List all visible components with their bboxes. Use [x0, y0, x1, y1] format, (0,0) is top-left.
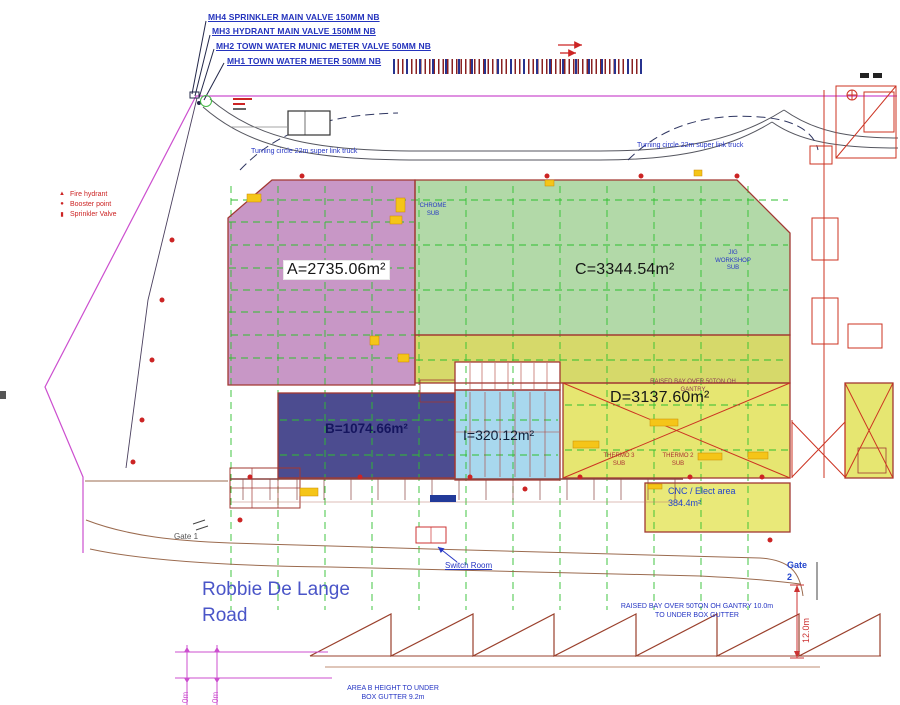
water-meter-box [190, 92, 199, 98]
road-name-label: Robbie De Lange Road [202, 577, 350, 628]
black-tick-1 [860, 73, 869, 78]
left-dimension-1: 0m [181, 692, 190, 703]
cnc-elect-area-label: CNC / Elect area 384.4m² [668, 486, 736, 509]
mh3-valve-label: MH3 HYDRANT MAIN VALVE 150MM NB [212, 26, 376, 36]
gate1-label: Gate 1 [174, 532, 198, 541]
mh1-valve-label: MH1 TOWN WATER METER 50MM NB [227, 56, 381, 66]
parking-sign-chip [430, 495, 456, 502]
switch-room-label: Switch Room [445, 561, 492, 570]
rooms-block [455, 362, 560, 390]
raised-bay-gantry-label: RAISED BAY OVER 50TON OH GANTRY [633, 379, 753, 394]
thermo3-sub-label: THERMO 3 SUB [593, 453, 645, 468]
pipe-hatch-strip [393, 59, 645, 74]
raised-bay-bottom-note: RAISED BAY OVER 50TON OH GANTRY 10.0m TO… [612, 603, 782, 621]
legend-item-sprinkler-valve: ▮ Sprinkler Valve [58, 209, 117, 219]
legend-item-booster-point: ● Booster point [58, 199, 117, 209]
guard-house [230, 111, 330, 135]
legend-label: Booster point [70, 201, 111, 208]
mh4-valve-label: MH4 SPRINKLER MAIN VALVE 150MM NB [208, 12, 380, 22]
turning-circle-note-left: Turning circle 22m super link truck [251, 148, 357, 155]
sawtooth-profile [310, 614, 881, 667]
site-plan-drawing: MH4 SPRINKLER MAIN VALVE 150MM NB MH3 HY… [0, 0, 900, 705]
area-i-label: I=320.12m² [463, 427, 534, 443]
legend: ▲ Fire hydrant ● Booster point ▮ Sprinkl… [58, 189, 117, 219]
area-a-region [228, 180, 415, 385]
thermo2-sub-label: THERMO 2 SUB [652, 453, 704, 468]
left-edge-mark [0, 391, 6, 399]
gate1-marks [193, 520, 208, 530]
flow-arrows [558, 45, 582, 53]
legend-label: Sprinkler Valve [70, 211, 117, 218]
gate2-label: Gate 2 [787, 560, 807, 583]
sprinkler-valve-icon: ▮ [58, 211, 66, 218]
fire-hydrant-icon: ▲ [58, 191, 66, 197]
legend-item-fire-hydrant: ▲ Fire hydrant [58, 189, 117, 199]
black-tick-2 [873, 73, 882, 78]
area-c-label: C=3344.54m² [575, 261, 675, 279]
left-dimension-lines [175, 645, 332, 705]
legend-label: Fire hydrant [70, 191, 107, 198]
left-dimension-2: 0m [211, 692, 220, 703]
turning-circle-note-right: Turning circle 22m super link truck [637, 142, 743, 149]
booster-point-icon: ● [58, 201, 66, 207]
parking-row [230, 479, 683, 502]
jig-workshop-sub-label: JIG WORKSHOP SUB [708, 250, 758, 273]
mh2-valve-label: MH2 TOWN WATER MUNIC METER VALVE 50MM NB [216, 41, 431, 51]
plan-linework [0, 0, 900, 705]
chrome-sub-label: CHROME SUB [408, 203, 458, 218]
area-b-label: B=1074.66m² [325, 421, 408, 436]
hydrant-note-marks [233, 99, 252, 104]
area-b-height-note: AREA B HEIGHT TO UNDER BOX GUTTER 9.2m [328, 685, 458, 703]
right-height-dimension: 12.0m [801, 618, 811, 643]
inner-fence-line [126, 98, 197, 468]
area-a-label: A=2735.06m² [284, 261, 389, 279]
